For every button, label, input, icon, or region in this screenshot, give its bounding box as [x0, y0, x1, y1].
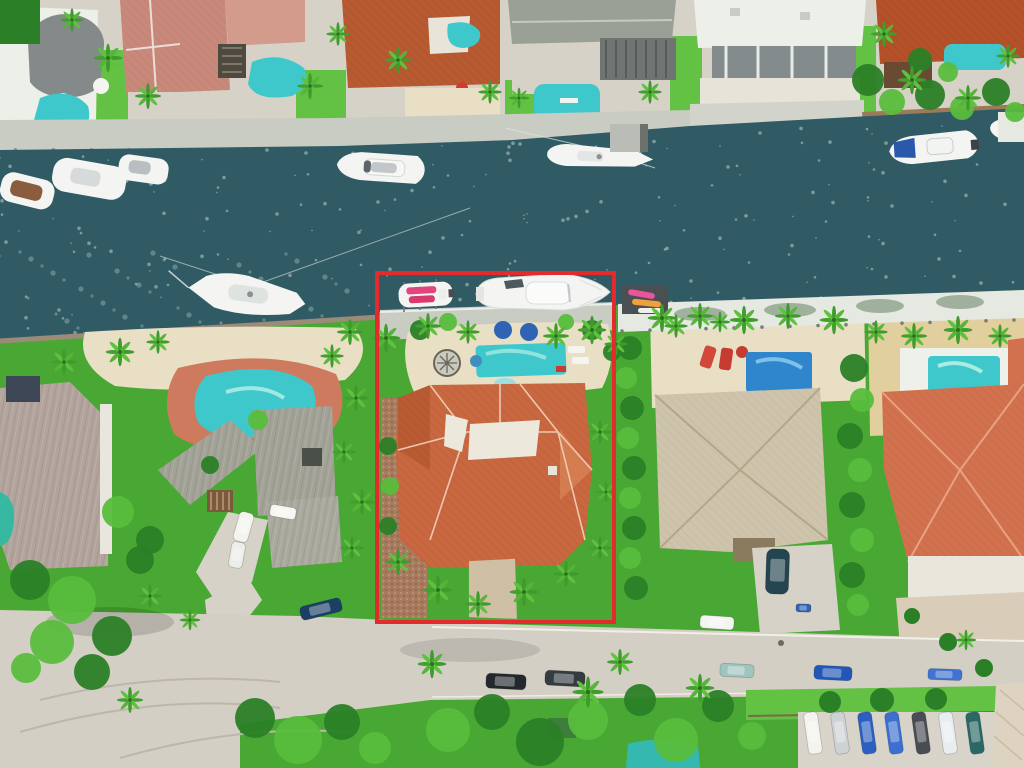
- umbrella-blue-1: [494, 321, 512, 339]
- piling: [816, 324, 820, 328]
- sparkle: [469, 220, 472, 223]
- sparkle: [107, 159, 109, 161]
- palm-tree: [418, 650, 447, 679]
- sparkle: [80, 232, 83, 235]
- tree-canopy: [938, 62, 958, 82]
- sparkle: [334, 282, 337, 285]
- sparkle: [227, 258, 229, 260]
- sparkle: [205, 217, 209, 221]
- sparkle: [248, 270, 251, 273]
- sparkle: [311, 230, 313, 232]
- sparkle: [683, 229, 686, 232]
- sparkle: [0, 199, 4, 203]
- sparkle: [78, 286, 83, 291]
- piling: [844, 323, 848, 327]
- tree-canopy: [622, 516, 646, 540]
- tree-canopy: [474, 694, 510, 730]
- sparkle: [523, 218, 525, 220]
- tree-canopy: [624, 576, 648, 600]
- sparkle: [70, 242, 72, 244]
- palm-tree: [385, 47, 411, 73]
- sparkle: [76, 326, 79, 329]
- palm-tree: [638, 80, 661, 103]
- sparkle: [744, 214, 748, 218]
- car: [814, 665, 853, 681]
- ac-unit-1: [730, 8, 740, 16]
- lounger-2: [572, 357, 589, 364]
- sparkle: [690, 297, 692, 299]
- sparkle: [126, 276, 129, 279]
- sparkle: [200, 254, 204, 258]
- sparkle: [561, 218, 565, 222]
- sparkle: [57, 308, 61, 312]
- palm-tree: [553, 561, 579, 587]
- tree-canopy: [619, 547, 641, 569]
- sparkle: [753, 219, 755, 221]
- sparkle: [304, 151, 308, 155]
- tree-canopy: [847, 594, 869, 616]
- sparkle: [54, 312, 57, 315]
- car: [720, 663, 755, 678]
- sparkle: [87, 241, 91, 245]
- palm-tree: [588, 420, 611, 443]
- sparkle: [432, 164, 434, 166]
- car: [765, 549, 790, 595]
- sparkle: [64, 318, 69, 323]
- sparkle: [867, 196, 870, 199]
- sparkle: [294, 258, 299, 263]
- sparkle: [871, 133, 873, 135]
- orange-roof-texture: [342, 0, 500, 88]
- sparkle: [284, 252, 287, 255]
- sparkle: [566, 217, 570, 221]
- tree-canopy: [852, 64, 884, 96]
- sparkle: [40, 264, 43, 267]
- slats: [606, 40, 666, 78]
- sparkle: [964, 194, 968, 198]
- sparkle: [300, 203, 303, 206]
- sparkle: [828, 140, 832, 144]
- sparkle: [937, 257, 941, 261]
- sparkle: [652, 140, 656, 144]
- palm-tree: [901, 323, 927, 349]
- sparkle: [360, 229, 362, 231]
- sparkle: [884, 275, 888, 279]
- subject-yacht: [476, 274, 610, 310]
- tree-canopy: [102, 496, 134, 528]
- lounger-1: [568, 346, 585, 353]
- ac-unit-2: [800, 12, 810, 20]
- tree-canopy: [915, 80, 945, 110]
- sparkle: [18, 250, 21, 253]
- sparkle: [18, 230, 20, 232]
- bush: [870, 688, 894, 712]
- sparkle: [172, 264, 177, 269]
- sparkle: [307, 173, 310, 176]
- palm-tree: [607, 649, 633, 675]
- small-runabout: [398, 281, 455, 308]
- umbrella-white-1: [93, 78, 109, 94]
- palm-tree: [955, 85, 981, 111]
- pink-roof-wing: [225, 0, 305, 46]
- sparkle: [294, 175, 296, 177]
- car: [928, 668, 962, 680]
- rn-driveway: [752, 544, 840, 634]
- tree-canopy: [92, 616, 132, 656]
- sparkle: [86, 252, 91, 257]
- sparkle: [154, 285, 158, 289]
- mauve-wall: [100, 404, 112, 554]
- tree-canopy: [379, 517, 397, 535]
- sparkle: [226, 210, 229, 213]
- palm-tree: [138, 584, 161, 607]
- tree-canopy: [622, 456, 646, 480]
- sparkle: [599, 200, 603, 204]
- sparkle: [8, 165, 12, 169]
- sparkle: [27, 327, 30, 330]
- sparkle: [726, 165, 730, 169]
- sparkle: [167, 284, 170, 287]
- palm-tree: [664, 314, 687, 337]
- palm-tree: [340, 536, 363, 559]
- sparkle: [360, 264, 363, 267]
- palm-tree: [320, 344, 343, 367]
- sparkle: [739, 174, 741, 176]
- sparkle: [109, 249, 113, 253]
- sparkle: [943, 180, 947, 184]
- sparkle: [758, 131, 762, 135]
- sparkle: [941, 125, 943, 127]
- house-modern: [694, 0, 866, 108]
- sparkle: [635, 271, 638, 274]
- palm-tree: [117, 687, 143, 713]
- sparkle: [162, 258, 165, 261]
- sparkle: [658, 196, 661, 199]
- palm-tree: [543, 323, 569, 349]
- sparkle: [507, 145, 511, 149]
- sparkle: [828, 184, 830, 186]
- tree-canopy: [48, 576, 96, 624]
- floating-pier-shadow: [640, 124, 648, 152]
- sparkle: [514, 260, 517, 263]
- palm-tree: [578, 316, 607, 345]
- sparkle: [788, 253, 791, 256]
- sparkle: [52, 218, 54, 220]
- palm-tree: [51, 349, 77, 375]
- palm-tree: [478, 80, 501, 103]
- sparkle: [269, 231, 271, 233]
- sparkle: [526, 213, 528, 215]
- sparkle: [388, 267, 392, 271]
- tree-canopy: [624, 684, 656, 716]
- sparkle: [723, 249, 725, 251]
- bush: [939, 633, 957, 651]
- bush: [925, 688, 947, 710]
- tree-canopy: [516, 718, 564, 766]
- sparkle: [508, 159, 512, 163]
- palm-tree: [106, 338, 135, 367]
- tree-canopy: [324, 704, 360, 740]
- palm-tree: [94, 44, 123, 73]
- sparkle: [689, 279, 693, 283]
- sparkle: [147, 263, 151, 267]
- sparkle: [122, 314, 127, 319]
- palm-tree: [864, 320, 887, 343]
- sparkle: [873, 168, 876, 171]
- palm-tree: [424, 576, 453, 605]
- tree-canopy: [201, 456, 219, 474]
- subject-house: [396, 383, 592, 568]
- compass-lines: [437, 353, 457, 373]
- bush: [819, 691, 841, 713]
- sparkle: [288, 274, 292, 278]
- sparkle: [153, 191, 155, 193]
- sparkle: [866, 128, 869, 131]
- palm-tree: [135, 83, 161, 109]
- red-chair: [556, 366, 566, 372]
- sparkle: [4, 240, 8, 244]
- tree-canopy: [982, 78, 1010, 106]
- sparkle: [867, 200, 869, 202]
- house-nw: [0, 0, 109, 135]
- palm-tree: [509, 88, 530, 109]
- sparkle: [511, 141, 515, 145]
- sparkle: [149, 270, 151, 272]
- palm-tree: [588, 536, 611, 559]
- piling: [704, 327, 708, 331]
- palm-tree: [456, 320, 479, 343]
- sparkle: [719, 145, 721, 147]
- sparkle: [934, 234, 937, 237]
- sparkle: [186, 312, 191, 317]
- car: [796, 604, 811, 613]
- mauve-seams: [0, 382, 108, 570]
- sparkle: [518, 142, 522, 146]
- roof-vent: [302, 448, 322, 466]
- sparkle: [884, 141, 888, 145]
- outboard: [448, 289, 454, 297]
- palm-tree: [146, 330, 169, 353]
- windshield: [363, 160, 371, 172]
- tree-canopy: [426, 708, 470, 752]
- sparkle: [664, 248, 667, 251]
- sparkle: [473, 186, 475, 188]
- sparkle: [509, 262, 512, 265]
- palm-tree: [180, 610, 201, 631]
- tree-canopy: [837, 423, 863, 449]
- sparkle: [28, 256, 33, 261]
- tree-canopy: [848, 458, 872, 482]
- sparkle: [217, 253, 220, 256]
- paver-corner: [992, 682, 1024, 768]
- tree-canopy: [839, 562, 865, 588]
- sparkle: [717, 291, 720, 294]
- sparkle: [162, 212, 166, 216]
- sparkle: [217, 186, 220, 189]
- sparkle: [815, 237, 817, 239]
- palm-tree: [510, 578, 539, 607]
- lounger: [560, 98, 578, 103]
- piling: [620, 329, 624, 333]
- sparkle: [1003, 203, 1007, 207]
- sparkle: [461, 234, 464, 237]
- sparkle: [790, 244, 794, 248]
- sparkle: [890, 204, 894, 208]
- sparkle: [148, 290, 151, 293]
- sparkle: [433, 186, 436, 189]
- sparkle: [26, 296, 29, 299]
- sparkle: [323, 202, 327, 206]
- palm-tree: [385, 549, 411, 575]
- sparkle: [718, 236, 722, 240]
- sparkle: [198, 320, 201, 323]
- sparkle: [924, 276, 926, 278]
- tree-canopy: [439, 313, 457, 331]
- palm-tree: [956, 630, 977, 651]
- sparkle: [344, 288, 349, 293]
- pink-roof-texture: [120, 0, 230, 94]
- sparkle: [114, 268, 119, 273]
- tree-canopy: [248, 410, 268, 430]
- sparkle: [77, 227, 81, 231]
- palm-tree: [415, 313, 441, 339]
- pergola: [218, 44, 246, 78]
- tree-canopy: [850, 528, 874, 552]
- sparkle: [814, 276, 817, 279]
- tree-canopy: [738, 722, 766, 750]
- bush: [904, 608, 920, 624]
- sparkle: [976, 163, 979, 166]
- tree-canopy: [879, 89, 905, 115]
- slat-building: [600, 38, 676, 80]
- sparkle: [150, 250, 155, 255]
- tree-canopy: [379, 437, 397, 455]
- sparkle: [421, 266, 423, 268]
- sparkle: [308, 306, 313, 311]
- sparkle: [799, 127, 803, 131]
- nw-hedge: [0, 0, 40, 44]
- subject-pool: [475, 342, 566, 377]
- sparkle: [878, 239, 880, 241]
- sparkle: [216, 192, 218, 194]
- sparkle: [811, 191, 815, 195]
- umbrella-blue-3: [470, 355, 482, 367]
- palm-tree: [944, 316, 973, 345]
- sparkle: [606, 269, 608, 271]
- palm-tree: [572, 676, 603, 707]
- modern-midband: [712, 46, 856, 78]
- tree-canopy: [74, 654, 110, 690]
- sparkle: [594, 279, 596, 281]
- sparkle: [112, 308, 115, 311]
- sparkle: [526, 222, 528, 224]
- umbrella-blue-2: [520, 323, 538, 341]
- sparkle: [62, 278, 65, 281]
- sparkle: [90, 294, 93, 297]
- palm-tree: [343, 385, 369, 411]
- palm-tree: [465, 591, 491, 617]
- car: [486, 673, 527, 690]
- sparkle: [24, 316, 28, 320]
- sparkle: [585, 210, 589, 214]
- sparkle: [659, 220, 661, 222]
- sparkle: [979, 281, 983, 285]
- palm-tree: [730, 306, 759, 335]
- sparkle: [331, 278, 333, 280]
- sparkle: [959, 250, 962, 253]
- sparkle: [931, 201, 933, 203]
- scene-canvas: [0, 0, 1024, 768]
- solar-panels: [6, 376, 40, 402]
- sparkle: [1012, 281, 1015, 284]
- palm-tree: [686, 674, 715, 703]
- palm-tree: [297, 73, 323, 99]
- palm-tree: [775, 303, 801, 329]
- palm-tree: [710, 312, 731, 333]
- tree-canopy: [274, 716, 322, 764]
- tree-canopy: [839, 492, 865, 518]
- sparkle: [954, 220, 956, 222]
- tree-canopy: [136, 526, 164, 554]
- sparkle: [410, 189, 414, 193]
- roof-white-patch: [468, 420, 540, 460]
- piling: [648, 328, 652, 332]
- tree-canopy: [381, 477, 399, 495]
- sparkle: [735, 218, 738, 221]
- modern-roof: [694, 0, 866, 48]
- tree-canopy: [10, 560, 50, 600]
- sparkle: [666, 148, 668, 150]
- sparkle: [384, 210, 386, 212]
- sparkle: [507, 268, 510, 271]
- sparkle: [368, 305, 370, 307]
- palm-tree: [988, 324, 1011, 347]
- tree-canopy: [850, 388, 874, 412]
- palm-tree: [820, 306, 849, 335]
- sparkle: [952, 275, 956, 279]
- sparkle: [648, 262, 651, 265]
- sparkle: [1, 213, 4, 216]
- sparkle: [736, 165, 739, 168]
- tree-canopy: [235, 698, 275, 738]
- sparkle: [825, 220, 828, 223]
- sparkle: [831, 201, 835, 205]
- palm-tree: [349, 489, 375, 515]
- sparkle: [574, 215, 578, 219]
- sparkle: [871, 268, 874, 271]
- sparkle: [485, 174, 487, 176]
- sparkle: [881, 171, 885, 175]
- sparkle: [674, 205, 676, 207]
- sparkle: [523, 215, 525, 217]
- palm-tree: [337, 319, 363, 345]
- palm-tree: [332, 440, 355, 463]
- piling: [984, 319, 988, 323]
- fr-roof-texture: [882, 384, 1024, 562]
- sparkle: [220, 322, 223, 325]
- sparkle: [465, 283, 469, 287]
- palm-tree: [898, 66, 927, 95]
- sparkle: [711, 184, 714, 187]
- sparkle: [881, 242, 885, 246]
- palm-tree: [687, 303, 713, 329]
- sparkle: [447, 174, 450, 177]
- sparkle: [262, 318, 265, 321]
- tree-canopy: [359, 732, 391, 764]
- sparkle: [320, 314, 323, 317]
- tree-canopy: [11, 653, 41, 683]
- swim-platform: [476, 287, 484, 301]
